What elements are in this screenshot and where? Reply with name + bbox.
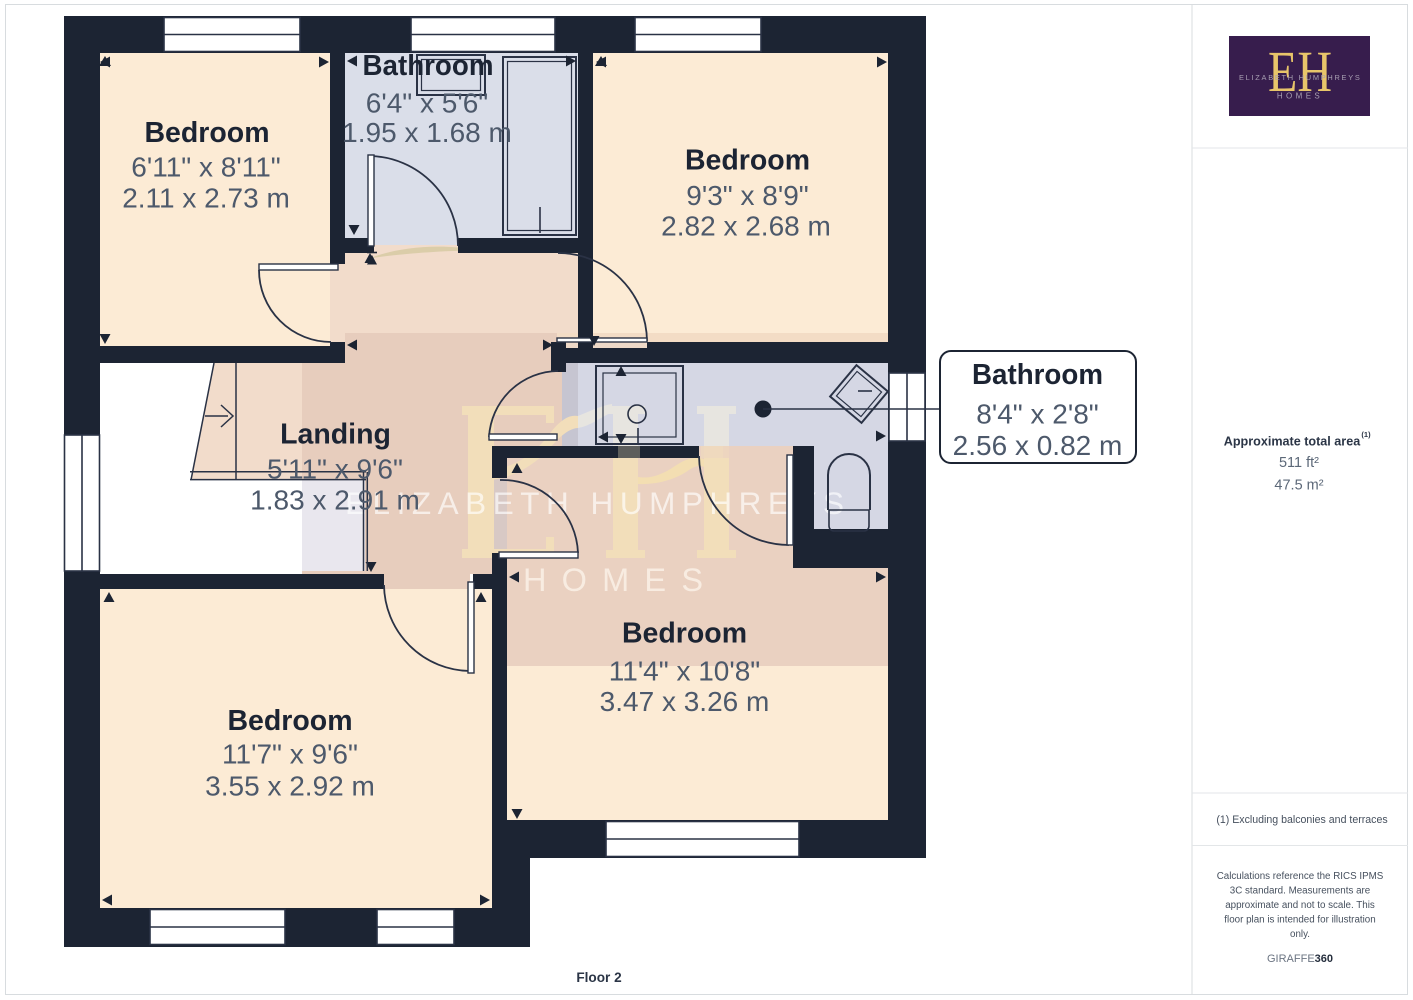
svg-text:47.5 m²: 47.5 m²: [1274, 478, 1323, 494]
svg-text:GIRAFFE360: GIRAFFE360: [1267, 953, 1333, 965]
svg-text:Bedroom: Bedroom: [144, 117, 269, 149]
svg-text:5'11" x 9'6": 5'11" x 9'6": [267, 454, 403, 485]
svg-text:Floor 2: Floor 2: [576, 970, 622, 985]
svg-text:2.11 x 2.73 m: 2.11 x 2.73 m: [122, 183, 290, 214]
svg-text:(1): (1): [1361, 430, 1371, 439]
svg-text:9'3" x 8'9": 9'3" x 8'9": [686, 180, 808, 211]
svg-text:3.47 x 3.26 m: 3.47 x 3.26 m: [600, 686, 770, 717]
svg-text:3C standard. Measurements are: 3C standard. Measurements are: [1230, 886, 1371, 897]
svg-text:511 ft²: 511 ft²: [1279, 455, 1319, 471]
svg-text:floor plan is intended for ill: floor plan is intended for illustration: [1224, 915, 1375, 926]
svg-text:HOMES: HOMES: [1277, 92, 1323, 101]
svg-text:HOMES: HOMES: [523, 562, 724, 598]
svg-text:6'4" x 5'6": 6'4" x 5'6": [366, 88, 488, 119]
svg-text:8'4" x 2'8": 8'4" x 2'8": [976, 399, 1098, 430]
svg-text:ELIZABETH HUMPHREYS: ELIZABETH HUMPHREYS: [1239, 73, 1361, 82]
svg-text:Calculations reference the RIC: Calculations reference the RICS IPMS: [1217, 871, 1384, 882]
svg-text:Bedroom: Bedroom: [622, 618, 747, 650]
svg-text:only.: only.: [1290, 929, 1310, 940]
svg-text:6'11" x 8'11": 6'11" x 8'11": [131, 151, 280, 182]
svg-text:11'7" x 9'6": 11'7" x 9'6": [222, 738, 358, 769]
svg-text:2.82 x 2.68 m: 2.82 x 2.68 m: [661, 211, 831, 242]
svg-text:(1) Excluding balconies and te: (1) Excluding balconies and terraces: [1216, 814, 1387, 826]
svg-text:1.83 x 2.91 m: 1.83 x 2.91 m: [250, 485, 420, 516]
svg-text:2.56 x 0.82 m: 2.56 x 0.82 m: [953, 430, 1123, 461]
svg-text:Approximate total area: Approximate total area: [1224, 435, 1361, 449]
svg-text:ELIZABETH HUMPHREYS: ELIZABETH HUMPHREYS: [345, 485, 855, 521]
svg-text:Bedroom: Bedroom: [685, 145, 810, 177]
svg-text:3.55 x 2.92 m: 3.55 x 2.92 m: [205, 770, 375, 801]
svg-text:Bedroom: Bedroom: [227, 705, 352, 737]
svg-text:11'4" x 10'8": 11'4" x 10'8": [609, 656, 760, 687]
svg-text:Bathroom: Bathroom: [972, 359, 1103, 391]
svg-text:Bathroom: Bathroom: [363, 50, 494, 82]
svg-text:approximate and not to scale.: approximate and not to scale. This: [1225, 900, 1375, 911]
svg-text:Landing: Landing: [280, 418, 391, 450]
svg-text:1.95 x 1.68 m: 1.95 x 1.68 m: [342, 117, 512, 148]
